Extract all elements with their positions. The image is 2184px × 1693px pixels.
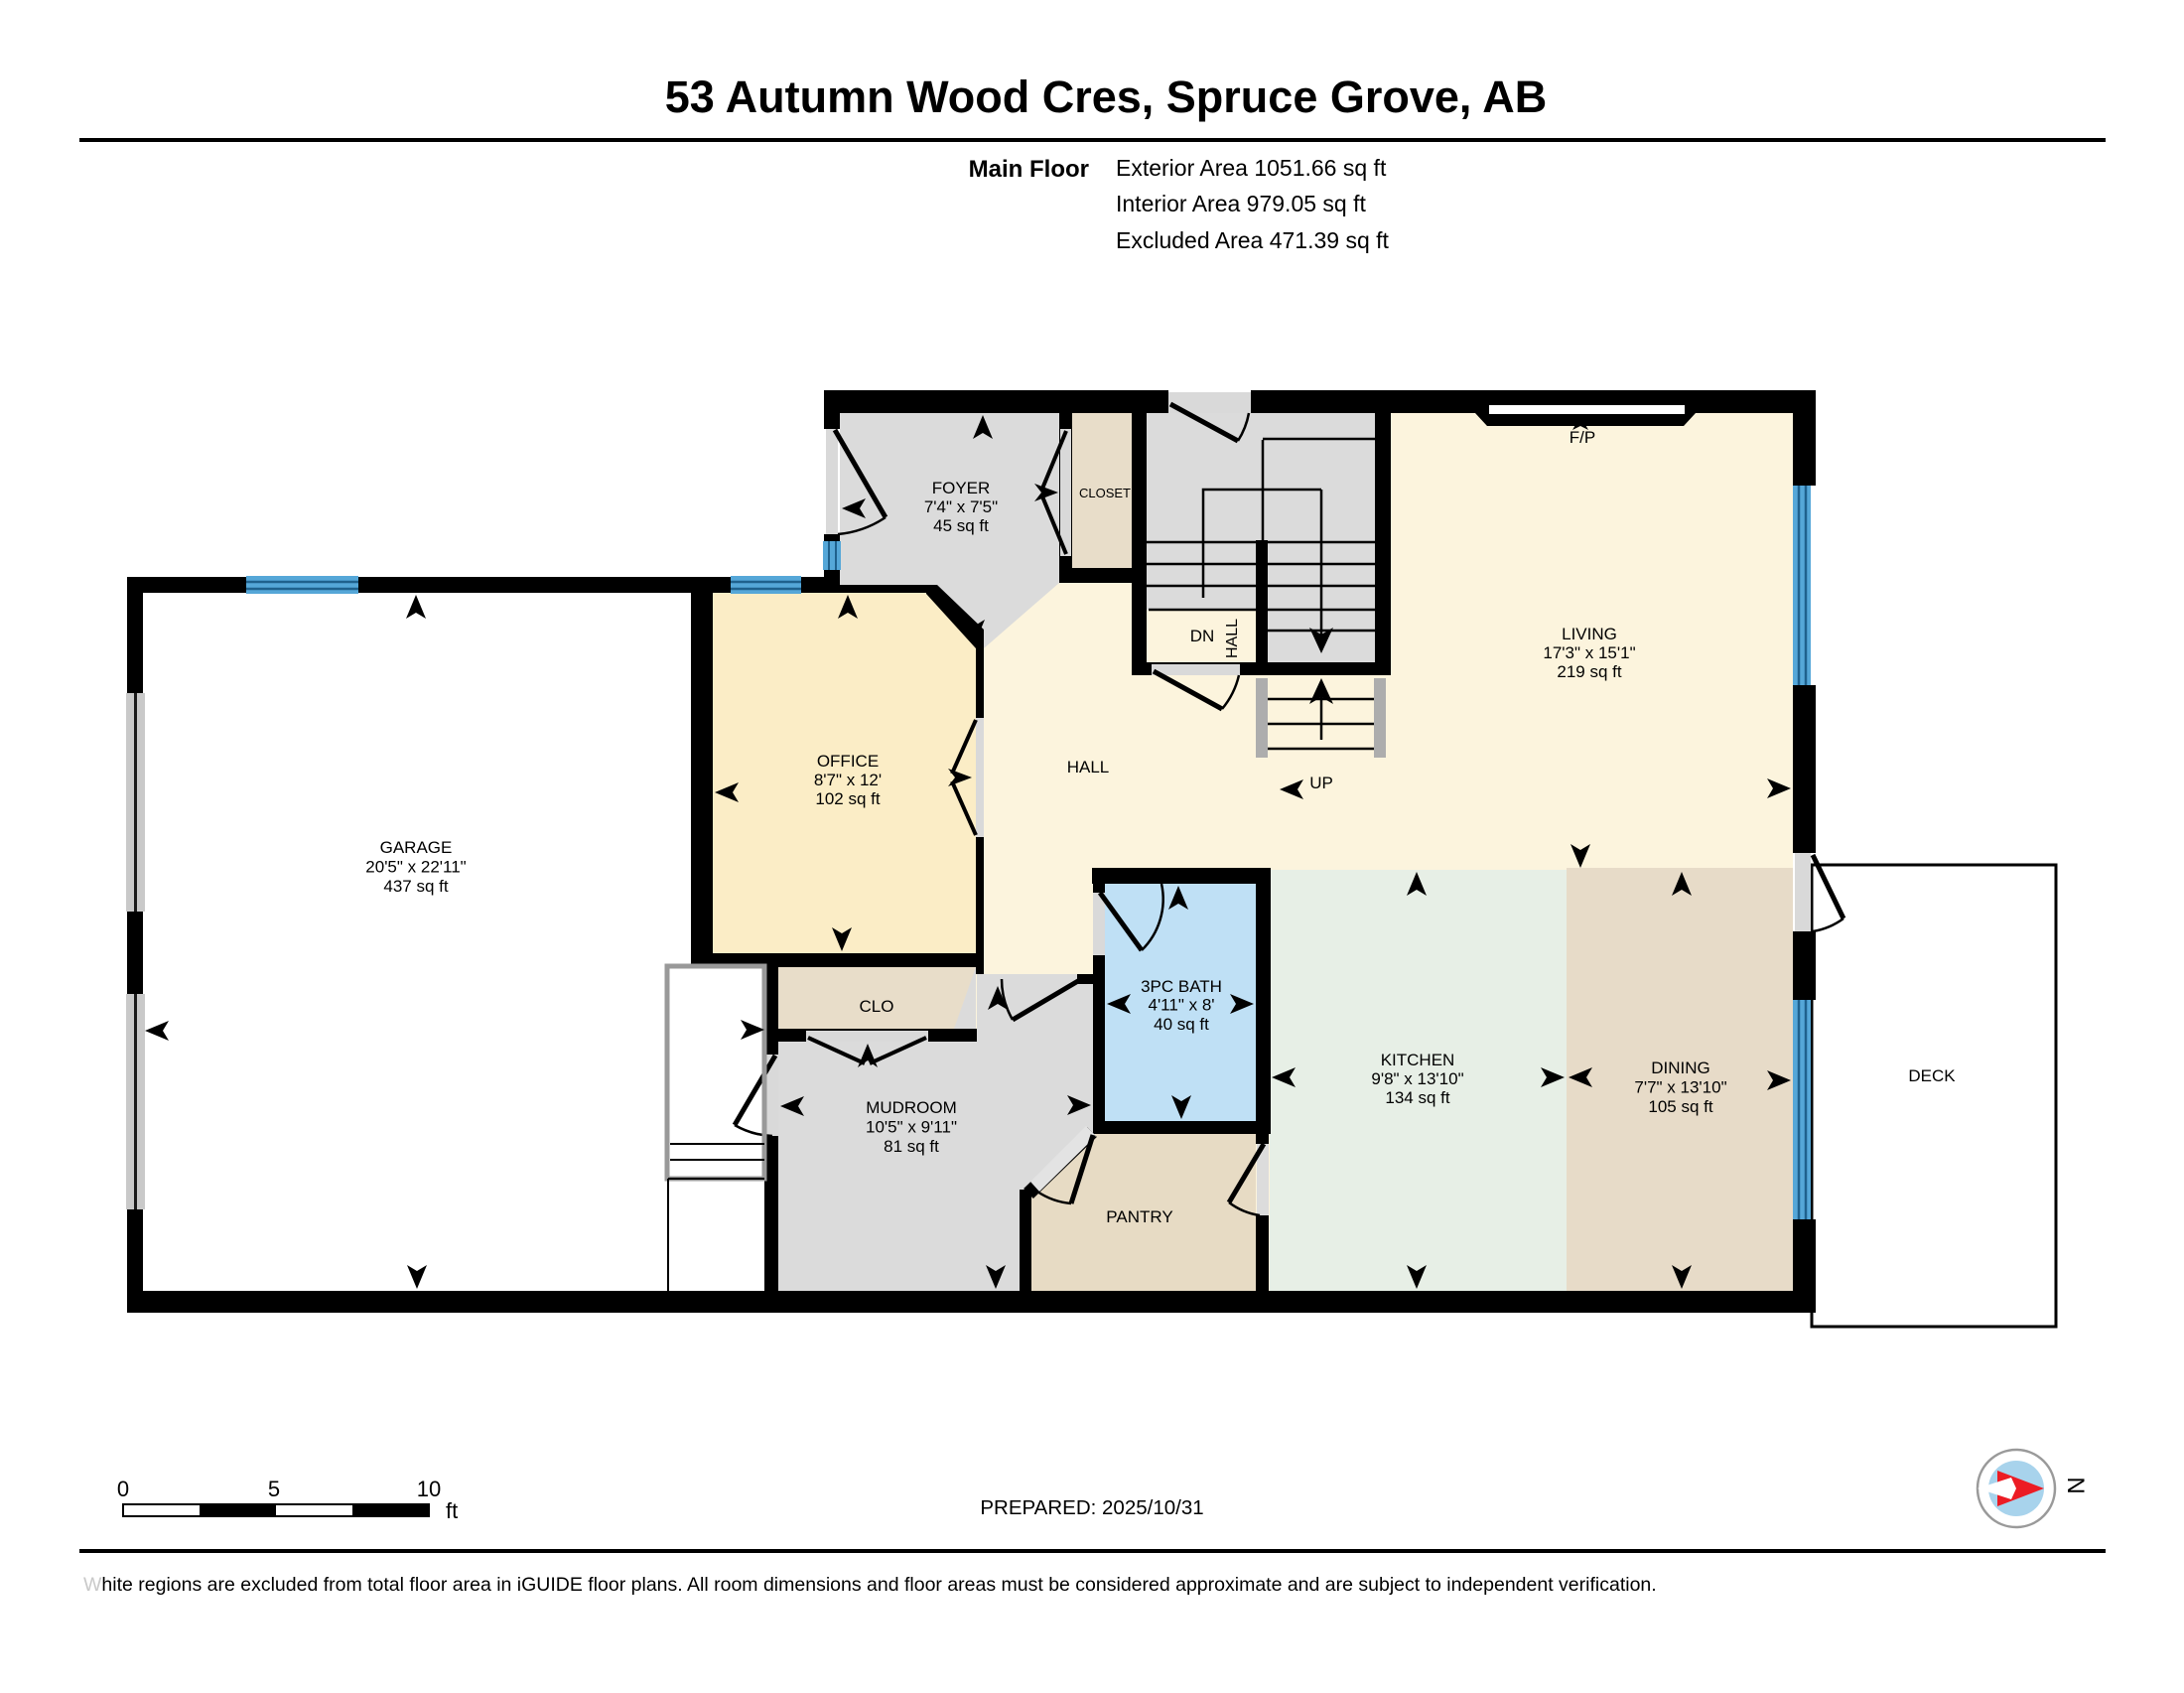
svg-text:CLO: CLO — [860, 997, 894, 1016]
svg-text:0: 0 — [117, 1477, 129, 1501]
svg-text:8'7" x 12': 8'7" x 12' — [814, 771, 882, 789]
svg-text:105 sq ft: 105 sq ft — [1648, 1097, 1712, 1116]
svg-text:FOYER: FOYER — [932, 479, 991, 497]
svg-text:10'5" x 9'11": 10'5" x 9'11" — [866, 1118, 957, 1137]
svg-text:N: N — [2062, 1477, 2089, 1493]
svg-text:4'11" x 8': 4'11" x 8' — [1148, 996, 1214, 1015]
svg-text:UP: UP — [1309, 774, 1333, 792]
svg-text:PANTRY: PANTRY — [1106, 1207, 1172, 1226]
svg-text:102 sq ft: 102 sq ft — [815, 789, 880, 808]
svg-text:CLOSET: CLOSET — [1079, 486, 1131, 500]
svg-text:53 Autumn Wood Cres, Spruce Gr: 53 Autumn Wood Cres, Spruce Grove, AB — [665, 71, 1548, 122]
svg-text:LIVING: LIVING — [1562, 625, 1617, 643]
svg-text:40 sq ft: 40 sq ft — [1154, 1015, 1209, 1034]
svg-text:MUDROOM: MUDROOM — [866, 1098, 957, 1117]
svg-text:HALL: HALL — [1224, 619, 1241, 658]
svg-text:DINING: DINING — [1651, 1058, 1710, 1077]
svg-text:7'7" x 13'10": 7'7" x 13'10" — [1634, 1078, 1726, 1097]
svg-text:219 sq ft: 219 sq ft — [1557, 662, 1621, 681]
svg-text:GARAGE: GARAGE — [380, 838, 453, 857]
svg-text:KITCHEN: KITCHEN — [1381, 1051, 1455, 1069]
svg-text:9'8" x 13'10": 9'8" x 13'10" — [1371, 1069, 1463, 1088]
svg-text:437 sq ft: 437 sq ft — [383, 877, 448, 896]
svg-text:10: 10 — [417, 1477, 441, 1501]
svg-text:7'4" x 7'5": 7'4" x 7'5" — [924, 497, 998, 516]
svg-text:Excluded Area 471.39 sq ft: Excluded Area 471.39 sq ft — [1116, 227, 1390, 253]
svg-text:White regions are excluded fro: White regions are excluded from total fl… — [83, 1574, 1657, 1596]
svg-text:DECK: DECK — [1908, 1066, 1956, 1085]
svg-text:ft: ft — [446, 1498, 458, 1523]
svg-text:45 sq ft: 45 sq ft — [933, 516, 989, 535]
svg-text:134 sq ft: 134 sq ft — [1385, 1088, 1449, 1107]
svg-text:20'5" x 22'11": 20'5" x 22'11" — [365, 858, 466, 877]
svg-text:Interior Area 979.05 sq ft: Interior Area 979.05 sq ft — [1116, 191, 1366, 216]
svg-text:HALL: HALL — [1067, 758, 1110, 776]
svg-text:F/P: F/P — [1570, 428, 1595, 447]
svg-text:3PC BATH: 3PC BATH — [1141, 977, 1222, 996]
svg-text:PREPARED: 2025/10/31: PREPARED: 2025/10/31 — [980, 1496, 1203, 1519]
svg-text:DN: DN — [1190, 627, 1215, 645]
svg-text:Exterior Area 1051.66 sq ft: Exterior Area 1051.66 sq ft — [1116, 155, 1387, 181]
svg-text:5: 5 — [268, 1477, 280, 1501]
svg-text:OFFICE: OFFICE — [817, 752, 879, 771]
svg-text:81 sq ft: 81 sq ft — [884, 1137, 939, 1156]
svg-text:17'3" x 15'1": 17'3" x 15'1" — [1543, 643, 1635, 662]
svg-text:Main Floor: Main Floor — [969, 156, 1089, 183]
